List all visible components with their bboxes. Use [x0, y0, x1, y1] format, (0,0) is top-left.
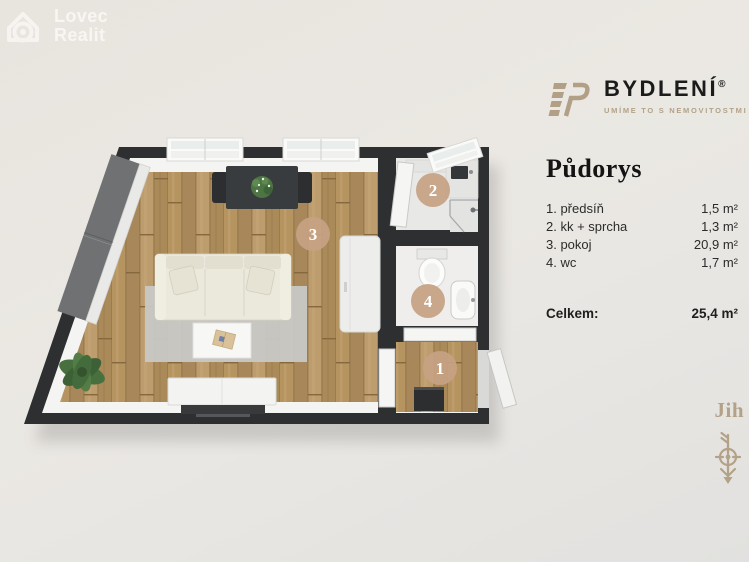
room-label: 2. kk + sprcha: [546, 218, 627, 236]
svg-text:3: 3: [309, 225, 318, 244]
room-badge-4: 4: [411, 284, 445, 318]
coffee-table: [193, 323, 251, 358]
registered-mark: ®: [718, 79, 725, 90]
wc-door: [404, 328, 476, 341]
room-badge-1: 1: [423, 351, 457, 385]
total-row: Celkem: 25,4 m²: [546, 306, 738, 321]
bydleni-monogram-icon: [546, 76, 592, 122]
room-label: 3. pokoj: [546, 236, 592, 254]
room-label: 1. předsíň: [546, 200, 604, 218]
dining-table: [212, 166, 312, 209]
room-area: 1,3 m²: [701, 218, 738, 236]
room-row: 3. pokoj 20,9 m²: [546, 236, 738, 254]
watermark-text: Lovec Realit: [54, 7, 108, 45]
shoe-cabinet: [414, 387, 444, 411]
compass-direction-label: Jih: [660, 398, 744, 423]
svg-text:2: 2: [429, 181, 438, 200]
svg-text:1: 1: [436, 359, 445, 378]
house-camera-icon: [2, 5, 44, 47]
room-area: 1,5 m²: [701, 200, 738, 218]
room-row: 2. kk + sprcha 1,3 m²: [546, 218, 738, 236]
brand-name: BYDLENÍ: [604, 76, 718, 101]
room-badge-3: 3: [296, 217, 330, 251]
watermark-logo: Lovec Realit: [2, 5, 108, 47]
sofa: [155, 254, 291, 320]
brand-tagline: UMÍME TO S NEMOVITOSTMI: [604, 106, 747, 115]
brand-logo: BYDLENÍ® UMÍME TO S NEMOVITOSTMI: [546, 76, 747, 122]
window: [283, 138, 359, 161]
room-row: 1. předsíň 1,5 m²: [546, 200, 738, 218]
tv: [181, 405, 265, 414]
legend-panel: Půdorys 1. předsíň 1,5 m² 2. kk + sprcha…: [546, 154, 738, 321]
room-row: 4. wc 1,7 m²: [546, 254, 738, 272]
total-area: 25,4 m²: [691, 306, 738, 321]
sofa-pillow: [169, 265, 199, 295]
window: [167, 138, 243, 161]
tv-sideboard: [168, 378, 276, 417]
hallway-door: [379, 349, 395, 407]
washbasin: [451, 281, 475, 319]
room-area: 20,9 m²: [694, 236, 738, 254]
room-label: 4. wc: [546, 254, 576, 272]
sofa-pillow: [246, 266, 276, 296]
shower: [450, 200, 478, 232]
compass-icon: [713, 430, 743, 491]
brand-text: BYDLENÍ® UMÍME TO S NEMOVITOSTMI: [604, 76, 747, 115]
watermark-line1: Lovec: [54, 7, 108, 26]
watermark-line2: Realit: [54, 26, 108, 45]
tall-cabinet: [340, 236, 380, 332]
svg-text:4: 4: [424, 292, 433, 311]
page-title: Půdorys: [546, 154, 738, 184]
total-label: Celkem:: [546, 306, 599, 321]
sink: [451, 166, 468, 179]
room-badge-2: 2: [416, 173, 450, 207]
entrance-opening: [478, 350, 489, 408]
room-area: 1,7 m²: [701, 254, 738, 272]
toilet: [417, 249, 447, 288]
page: 3 2 4 1 Lovec Realit: [0, 0, 749, 562]
